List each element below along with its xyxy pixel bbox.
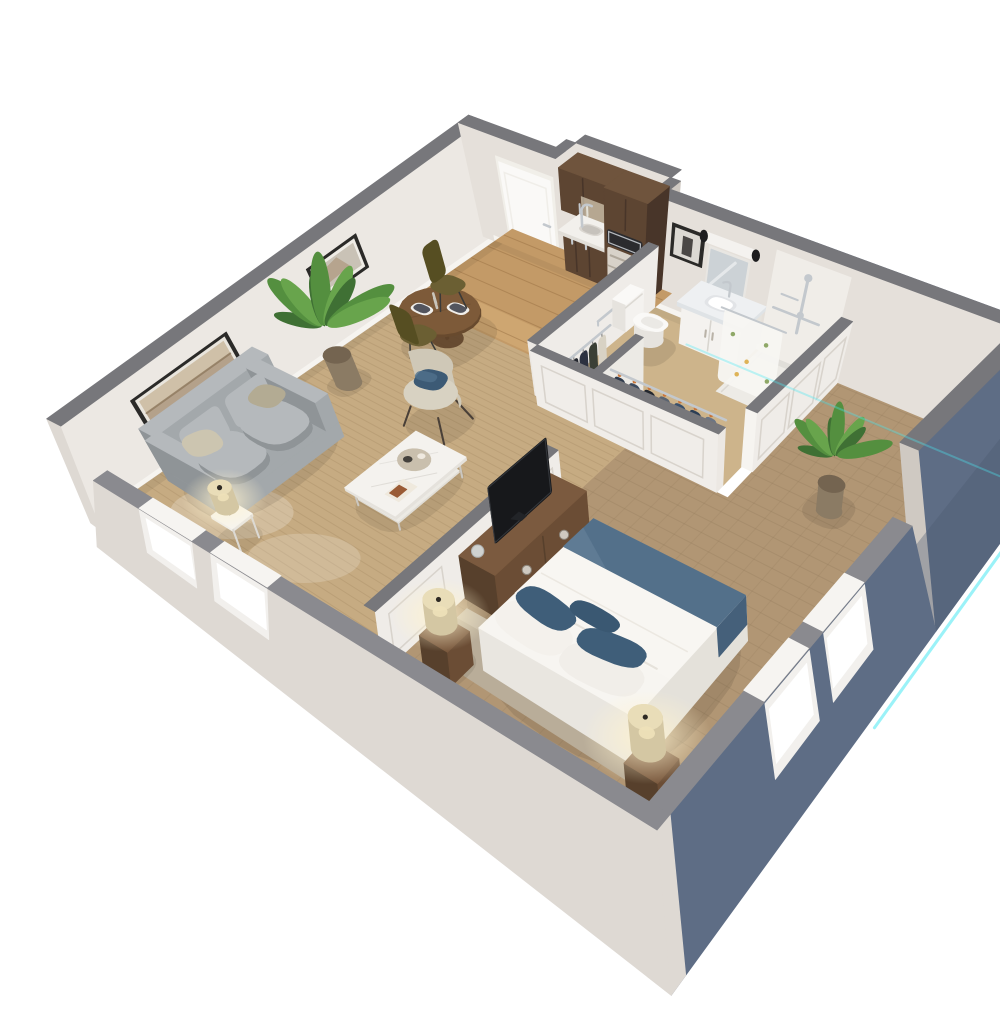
apartment-cutaway <box>47 115 1000 995</box>
floor-plan-figure: One-bedroom apartment - 3D isometric cut… <box>40 16 1000 1016</box>
floor-plan-render <box>40 16 1000 1016</box>
